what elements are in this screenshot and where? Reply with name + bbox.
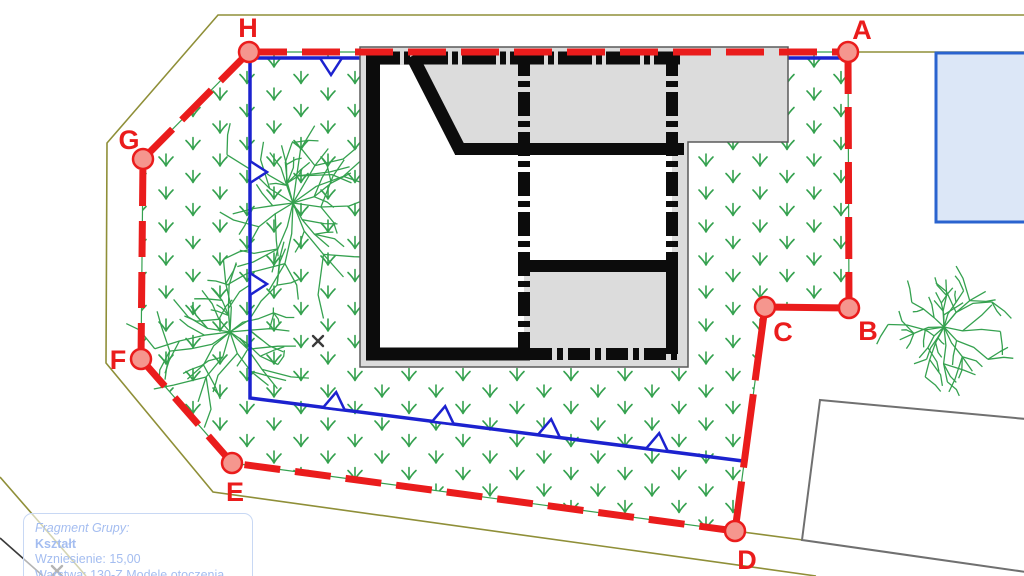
grass-symbol xyxy=(591,517,605,529)
grass-symbol xyxy=(726,369,740,381)
tree-twig xyxy=(908,281,912,303)
grass-symbol xyxy=(240,138,254,150)
grass-symbol xyxy=(780,468,794,480)
grass-symbol xyxy=(807,154,821,166)
grass-symbol xyxy=(321,88,335,100)
grass-symbol xyxy=(645,385,659,397)
tree-twig xyxy=(237,349,248,366)
vertex-label-B: B xyxy=(858,316,878,346)
grass-symbol xyxy=(456,369,470,381)
grass-symbol xyxy=(294,303,308,315)
grass-symbol xyxy=(753,517,767,529)
tree-twig xyxy=(963,305,992,331)
grass-symbol xyxy=(726,171,740,183)
grass-symbol xyxy=(213,88,227,100)
grass-symbol xyxy=(483,550,497,562)
grass-symbol xyxy=(591,550,605,562)
site-plan-canvas: ABCDEFGH Fragment Grupy: Kształt Wzniesi… xyxy=(0,0,1024,576)
tree-twig xyxy=(925,377,941,392)
grass-symbol xyxy=(726,435,740,447)
grass-symbol xyxy=(699,154,713,166)
grass-symbol xyxy=(861,253,875,265)
building-plan[interactable] xyxy=(360,47,788,367)
tree-twig xyxy=(315,232,334,234)
grass-symbol xyxy=(186,138,200,150)
tree-branch xyxy=(936,292,944,327)
grass-symbol xyxy=(780,402,794,414)
grass-symbol xyxy=(294,501,308,513)
grass-symbol xyxy=(780,237,794,249)
grass-symbol xyxy=(672,369,686,381)
grass-symbol xyxy=(267,451,281,463)
grass-symbol xyxy=(780,501,794,513)
grass-symbol xyxy=(213,121,227,133)
grass-symbol xyxy=(402,468,416,480)
boundary-segment-CD[interactable] xyxy=(735,307,765,531)
grass-symbol xyxy=(267,385,281,397)
tree-symbol-3[interactable] xyxy=(877,266,1014,396)
grass-symbol xyxy=(159,88,173,100)
tree-twig xyxy=(194,299,222,301)
tree-twig xyxy=(913,309,924,312)
neighbor-building-outline[interactable] xyxy=(802,400,1024,572)
grass-symbol xyxy=(699,484,713,496)
grass-symbol xyxy=(483,517,497,529)
grass-symbol xyxy=(267,121,281,133)
vertex-label-A: A xyxy=(852,15,872,45)
tree-twig xyxy=(992,302,1012,319)
tree-branch xyxy=(944,327,1000,331)
grass-symbol xyxy=(564,369,578,381)
grass-symbol xyxy=(672,501,686,513)
grass-symbol xyxy=(375,451,389,463)
fence-marker-triangle xyxy=(320,58,342,75)
grass-symbol xyxy=(132,435,146,447)
grass-symbol xyxy=(537,484,551,496)
tree-branch xyxy=(249,203,293,245)
grass-symbol xyxy=(321,352,335,364)
vertex-label-F: F xyxy=(110,345,127,375)
grass-symbol xyxy=(159,154,173,166)
grass-symbol xyxy=(537,451,551,463)
grass-symbol xyxy=(726,402,740,414)
grass-symbol xyxy=(375,517,389,529)
grass-symbol xyxy=(807,352,821,364)
grass-symbol xyxy=(186,72,200,84)
grass-symbol xyxy=(132,72,146,84)
grass-symbol xyxy=(321,418,335,430)
grass-symbol xyxy=(699,253,713,265)
grass-symbol xyxy=(375,418,389,430)
grass-symbol xyxy=(402,534,416,546)
vertex-label-G: G xyxy=(118,125,139,155)
tooltip-shape-value: Kształt xyxy=(35,537,241,553)
tooltip-layer-value: Warstwa: 130-Z Modele otoczenia xyxy=(35,568,241,576)
grass-symbol xyxy=(618,534,632,546)
grass-symbol xyxy=(159,253,173,265)
building-room xyxy=(524,155,672,266)
grass-symbol xyxy=(834,567,848,576)
tree-twig xyxy=(318,254,323,318)
grass-symbol xyxy=(672,534,686,546)
grass-symbol xyxy=(645,451,659,463)
grass-symbol xyxy=(348,567,362,576)
grass-symbol xyxy=(159,220,173,232)
grass-symbol xyxy=(699,385,713,397)
grass-symbol xyxy=(294,567,308,576)
grass-symbol xyxy=(348,369,362,381)
grass-symbol xyxy=(564,567,578,576)
vertex-label-D: D xyxy=(737,545,757,575)
grass-symbol xyxy=(510,468,524,480)
grass-symbol xyxy=(105,484,119,496)
grass-symbol xyxy=(564,402,578,414)
grass-symbol xyxy=(240,336,254,348)
tree-twig xyxy=(936,343,942,358)
vertex-handle-H[interactable] xyxy=(239,42,259,62)
grass-symbol xyxy=(483,451,497,463)
grass-symbol xyxy=(699,418,713,430)
grass-symbol xyxy=(591,484,605,496)
grass-symbol xyxy=(267,550,281,562)
tree-branch xyxy=(944,291,986,327)
grass-symbol xyxy=(375,385,389,397)
vertex-handle-E[interactable] xyxy=(222,453,242,473)
grass-symbol xyxy=(186,171,200,183)
grass-symbol xyxy=(726,237,740,249)
grass-symbol xyxy=(564,468,578,480)
info-tooltip: Fragment Grupy: Kształt Wzniesienie: 15,… xyxy=(23,513,253,576)
grass-symbol xyxy=(429,451,443,463)
grass-symbol xyxy=(726,336,740,348)
grass-symbol xyxy=(321,121,335,133)
fence-marker-triangle xyxy=(250,161,267,183)
grass-symbol xyxy=(510,369,524,381)
grass-symbol xyxy=(780,369,794,381)
grass-symbol xyxy=(861,550,875,562)
grass-symbol xyxy=(213,418,227,430)
grass-symbol xyxy=(159,286,173,298)
grass-symbol xyxy=(699,187,713,199)
grass-symbol xyxy=(537,385,551,397)
grass-symbol xyxy=(510,567,524,576)
grass-symbol xyxy=(591,451,605,463)
vertex-handle-D[interactable] xyxy=(725,521,745,541)
grass-symbol xyxy=(456,567,470,576)
grass-symbol xyxy=(267,88,281,100)
plan-drawing: ABCDEFGH xyxy=(0,0,1024,576)
tree-twig xyxy=(227,123,230,155)
grass-symbol xyxy=(429,385,443,397)
grass-symbol xyxy=(672,567,686,576)
grass-symbol xyxy=(483,385,497,397)
grass-symbol xyxy=(807,187,821,199)
grass-symbol xyxy=(618,567,632,576)
fence-marker-triangle xyxy=(646,432,670,452)
tree-twig xyxy=(192,305,207,328)
vertex-handle-F[interactable] xyxy=(131,349,151,369)
grass-symbol xyxy=(753,154,767,166)
snap-cross-marker xyxy=(313,336,323,346)
grass-symbol xyxy=(726,204,740,216)
tree-twig xyxy=(184,316,219,321)
grass-symbol xyxy=(780,435,794,447)
grass-symbol xyxy=(753,418,767,430)
grass-symbol xyxy=(861,385,875,397)
tree-twig xyxy=(938,338,945,345)
grass-symbol xyxy=(483,484,497,496)
tree-branch xyxy=(925,327,944,377)
tooltip-elevation-value: Wzniesienie: 15,00 xyxy=(35,552,241,568)
grass-symbol xyxy=(186,204,200,216)
tree-branch xyxy=(223,259,231,332)
grass-symbol xyxy=(699,220,713,232)
blue-area-rect[interactable] xyxy=(936,53,1024,222)
grass-symbol xyxy=(375,550,389,562)
grass-symbol xyxy=(429,550,443,562)
grass-symbol xyxy=(159,55,173,67)
grass-symbol xyxy=(402,435,416,447)
grass-symbol xyxy=(861,154,875,166)
grass-symbol xyxy=(294,72,308,84)
grass-symbol xyxy=(780,204,794,216)
grass-symbol xyxy=(537,517,551,529)
grass-symbol xyxy=(240,303,254,315)
grass-symbol xyxy=(645,484,659,496)
tree-twig xyxy=(955,291,956,303)
grass-symbol xyxy=(348,435,362,447)
grass-symbol xyxy=(267,418,281,430)
grass-symbol xyxy=(402,567,416,576)
grass-symbol xyxy=(132,501,146,513)
grass-symbol xyxy=(267,484,281,496)
grass-symbol xyxy=(672,402,686,414)
tree-twig xyxy=(956,266,970,301)
grass-symbol xyxy=(861,352,875,364)
grass-symbol xyxy=(321,286,335,298)
grass-symbol xyxy=(861,121,875,133)
grass-symbol xyxy=(753,451,767,463)
grass-symbol xyxy=(321,319,335,331)
grass-symbol xyxy=(213,187,227,199)
grass-symbol xyxy=(159,484,173,496)
grass-symbol xyxy=(294,435,308,447)
vertex-label-C: C xyxy=(773,317,793,347)
tree-twig xyxy=(877,325,888,345)
grass-symbol xyxy=(807,220,821,232)
grass-symbol xyxy=(672,468,686,480)
grass-symbol xyxy=(807,385,821,397)
grass-symbol xyxy=(780,270,794,282)
vertex-handle-A[interactable] xyxy=(838,42,858,62)
tree-branch xyxy=(944,327,948,382)
grass-symbol xyxy=(753,484,767,496)
grass-symbol xyxy=(321,484,335,496)
grass-symbol xyxy=(456,402,470,414)
grass-symbol xyxy=(672,435,686,447)
vertex-label-H: H xyxy=(238,13,258,43)
grass-symbol xyxy=(213,154,227,166)
grass-symbol xyxy=(456,435,470,447)
grass-symbol xyxy=(807,88,821,100)
grass-symbol xyxy=(807,286,821,298)
grass-symbol xyxy=(618,501,632,513)
grass-symbol xyxy=(240,435,254,447)
grass-symbol xyxy=(105,55,119,67)
grass-symbol xyxy=(726,270,740,282)
grass-symbol xyxy=(618,369,632,381)
grass-symbol xyxy=(267,517,281,529)
grass-symbol xyxy=(267,220,281,232)
tree-branch xyxy=(293,126,315,203)
grass-symbol xyxy=(132,468,146,480)
grass-symbol xyxy=(456,534,470,546)
grass-symbol xyxy=(699,352,713,364)
tree-branch xyxy=(227,155,293,203)
grass-symbol xyxy=(618,468,632,480)
vertex-handle-C[interactable] xyxy=(755,297,775,317)
grass-symbol xyxy=(537,550,551,562)
grass-symbol xyxy=(510,435,524,447)
grass-symbol xyxy=(159,451,173,463)
grass-symbol xyxy=(753,187,767,199)
grass-symbol xyxy=(780,171,794,183)
grass-symbol xyxy=(807,319,821,331)
grass-symbol xyxy=(807,550,821,562)
grass-symbol xyxy=(753,220,767,232)
grass-symbol xyxy=(834,204,848,216)
tree-twig xyxy=(248,346,296,349)
grass-symbol xyxy=(240,105,254,117)
boundary-segment-GH[interactable] xyxy=(143,52,249,159)
grass-symbol xyxy=(861,220,875,232)
grass-symbol xyxy=(321,517,335,529)
grass-symbol xyxy=(861,88,875,100)
tooltip-group-label: Fragment Grupy: xyxy=(35,521,241,537)
grass-symbol xyxy=(591,418,605,430)
grass-symbol xyxy=(861,55,875,67)
grass-symbol xyxy=(456,501,470,513)
grass-symbol xyxy=(861,187,875,199)
tree-branch xyxy=(944,327,988,359)
grass-symbol xyxy=(294,105,308,117)
tree-twig xyxy=(270,308,274,329)
grass-symbol xyxy=(699,286,713,298)
tree-twig xyxy=(924,330,926,348)
grass-symbol xyxy=(105,88,119,100)
grass-symbol xyxy=(402,501,416,513)
grass-symbol xyxy=(240,369,254,381)
tree-twig xyxy=(285,264,298,300)
vertex-handle-B[interactable] xyxy=(839,298,859,318)
grass-symbol xyxy=(186,435,200,447)
tree-twig xyxy=(256,184,272,205)
grass-symbol xyxy=(294,369,308,381)
grass-symbol xyxy=(294,336,308,348)
grass-symbol xyxy=(186,501,200,513)
grass-symbol xyxy=(159,187,173,199)
grass-symbol xyxy=(213,55,227,67)
grass-symbol xyxy=(240,72,254,84)
grass-symbol xyxy=(105,451,119,463)
grass-symbol xyxy=(753,253,767,265)
grass-symbol xyxy=(618,402,632,414)
grass-symbol xyxy=(510,402,524,414)
grass-symbol xyxy=(321,451,335,463)
fence-marker-triangle xyxy=(250,273,267,295)
tree-twig xyxy=(992,302,1001,316)
tree-twig xyxy=(315,234,345,246)
grass-symbol xyxy=(186,237,200,249)
tree-branch xyxy=(944,302,992,327)
grass-symbol xyxy=(402,402,416,414)
grass-symbol xyxy=(132,369,146,381)
grass-symbol xyxy=(294,270,308,282)
tree-twig xyxy=(970,300,996,302)
grass-symbol xyxy=(726,303,740,315)
grass-symbol xyxy=(699,319,713,331)
grass-symbol xyxy=(105,418,119,430)
grass-symbol xyxy=(861,286,875,298)
grass-symbol xyxy=(726,468,740,480)
grass-symbol xyxy=(294,534,308,546)
grass-symbol xyxy=(348,534,362,546)
fence-marker-triangle xyxy=(432,405,456,425)
tree-twig xyxy=(914,359,927,363)
grass-symbol xyxy=(240,402,254,414)
grass-symbol xyxy=(105,385,119,397)
tree-twig xyxy=(223,250,249,260)
tree-twig xyxy=(204,377,211,428)
grass-symbol xyxy=(564,534,578,546)
boundary-segment-BC[interactable] xyxy=(765,307,849,308)
grass-symbol xyxy=(780,534,794,546)
grass-symbol xyxy=(834,369,848,381)
grass-symbol xyxy=(321,550,335,562)
grass-symbol xyxy=(807,121,821,133)
grass-symbol xyxy=(456,468,470,480)
grass-symbol xyxy=(105,319,119,331)
grass-symbol xyxy=(834,336,848,348)
grass-symbol xyxy=(807,253,821,265)
grass-symbol xyxy=(402,369,416,381)
tree-branch xyxy=(230,329,289,332)
tree-branch xyxy=(944,327,972,371)
vertex-label-E: E xyxy=(226,477,244,507)
grass-symbol xyxy=(186,270,200,282)
grass-symbol xyxy=(591,385,605,397)
grass-symbol xyxy=(645,418,659,430)
grass-symbol xyxy=(213,220,227,232)
